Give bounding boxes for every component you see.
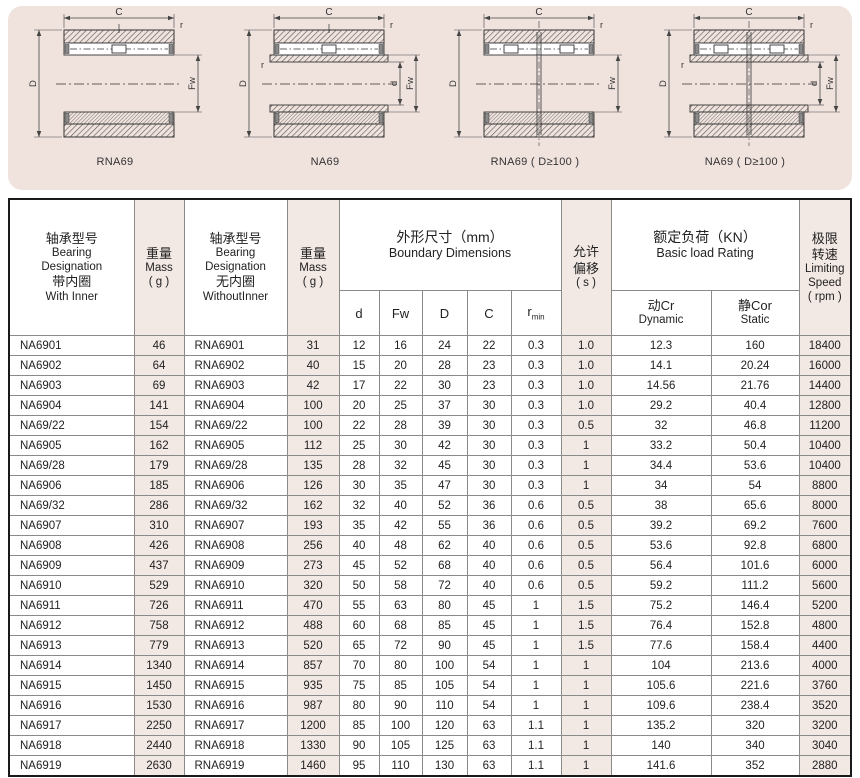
table-cell: 40.4	[711, 396, 799, 416]
table-cell: 1.1	[511, 756, 561, 777]
table-cell: 141.6	[611, 756, 711, 777]
table-cell: 32	[339, 496, 379, 516]
table-cell: 185	[134, 476, 184, 496]
dim-label-c: C	[115, 8, 122, 18]
dim-label-c: C	[325, 8, 332, 18]
table-cell: 75	[339, 676, 379, 696]
table-row: NA69/22154RNA69/22100222839300.30.53246.…	[9, 416, 851, 436]
table-cell: 38	[611, 496, 711, 516]
table-cell: 80	[422, 596, 467, 616]
table-cell: 4800	[799, 616, 851, 636]
table-cell: 213.6	[711, 656, 799, 676]
table-cell: RNA6919	[184, 756, 287, 777]
table-cell: 29.2	[611, 396, 711, 416]
table-cell: 12	[339, 336, 379, 356]
table-cell: 162	[134, 436, 184, 456]
table-cell: 1	[511, 696, 561, 716]
table-cell: 130	[422, 756, 467, 777]
table-cell: 35	[339, 516, 379, 536]
table-cell: 69	[134, 376, 184, 396]
col-subheader-D: D	[422, 291, 467, 336]
table-cell: RNA69/32	[184, 496, 287, 516]
table-cell: 35	[379, 476, 422, 496]
table-row: NA6910529RNA6910320505872400.60.559.2111…	[9, 576, 851, 596]
table-row: NA6912758RNA69124886068854511.576.4152.8…	[9, 616, 851, 636]
table-cell: 5600	[799, 576, 851, 596]
table-cell: 32	[611, 416, 711, 436]
table-cell: 30	[467, 436, 511, 456]
table-cell: 20	[339, 396, 379, 416]
table-cell: 14.1	[611, 356, 711, 376]
table-cell: 50.4	[711, 436, 799, 456]
dim-label-r: r	[390, 20, 393, 30]
table-cell: 0.3	[511, 456, 561, 476]
header-line: WithoutInner	[185, 291, 287, 305]
header-line: 轴承型号	[185, 231, 287, 247]
dim-label-fw: Fw	[405, 77, 416, 90]
table-cell: 7600	[799, 516, 851, 536]
table-cell: 110	[422, 696, 467, 716]
table-cell: 105.6	[611, 676, 711, 696]
table-cell: 64	[134, 356, 184, 376]
header-line: Designation	[10, 261, 134, 275]
table-cell: 36	[467, 516, 511, 536]
bearing-diagram-svg: CrDFw	[432, 8, 638, 160]
table-cell: 1460	[287, 756, 339, 777]
header-line: 极限	[800, 231, 851, 247]
bearing-diagram: CrDFwRNA69	[12, 8, 218, 168]
table-cell: 48	[379, 536, 422, 556]
table-cell: 100	[287, 396, 339, 416]
table-cell: 18400	[799, 336, 851, 356]
table-cell: 987	[287, 696, 339, 716]
table-cell: RNA6905	[184, 436, 287, 456]
table-cell: 135.2	[611, 716, 711, 736]
table-cell: 22	[467, 336, 511, 356]
table-cell: NA69/32	[9, 496, 134, 516]
table-cell: 437	[134, 556, 184, 576]
table-cell: 1.0	[561, 356, 611, 376]
table-cell: 158.4	[711, 636, 799, 656]
col-subheader-fw: Fw	[379, 291, 422, 336]
table-cell: 12.3	[611, 336, 711, 356]
table-cell: 42	[379, 516, 422, 536]
table-cell: 30	[467, 416, 511, 436]
table-cell: 0.3	[511, 336, 561, 356]
table-cell: 0.5	[561, 556, 611, 576]
table-cell: RNA6917	[184, 716, 287, 736]
table-cell: 0.5	[561, 576, 611, 596]
table-cell: 5200	[799, 596, 851, 616]
table-cell: NA6908	[9, 536, 134, 556]
table-cell: 2250	[134, 716, 184, 736]
table-cell: 1	[511, 596, 561, 616]
table-cell: 95	[339, 756, 379, 777]
table-cell: 0.6	[511, 576, 561, 596]
table-cell: 112	[287, 436, 339, 456]
table-cell: RNA6912	[184, 616, 287, 636]
header-line: Designation	[185, 261, 287, 275]
table-cell: 0.6	[511, 516, 561, 536]
table-cell: 100	[422, 656, 467, 676]
table-row: NA690369RNA690342172230230.31.014.5621.7…	[9, 376, 851, 396]
table-cell: 1.0	[561, 376, 611, 396]
table-cell: 37	[422, 396, 467, 416]
dim-label-r: r	[180, 20, 183, 30]
table-cell: NA6916	[9, 696, 134, 716]
table-cell: 85	[379, 676, 422, 696]
table-cell: 15	[339, 356, 379, 376]
table-cell: 42	[287, 376, 339, 396]
header-line: 轴承型号	[10, 231, 134, 247]
table-cell: 54	[711, 476, 799, 496]
table-cell: 85	[339, 716, 379, 736]
bearing-diagram: CrDFwRNA69 ( D≥100 )	[432, 8, 638, 168]
table-cell: RNA6907	[184, 516, 287, 536]
dim-label-c: C	[745, 8, 752, 18]
table-cell: 47	[422, 476, 467, 496]
table-row: NA690146RNA690131121624220.31.012.316018…	[9, 336, 851, 356]
table-cell: 935	[287, 676, 339, 696]
header-line: ( g )	[135, 276, 184, 290]
col-header-mass-2: 重量 Mass ( g )	[287, 199, 339, 336]
diagram-panel: CrDFwRNA69CrrDdFwNA69CrDFwRNA69 ( D≥100 …	[8, 6, 852, 190]
table-cell: 30	[339, 476, 379, 496]
dim-label-D: D	[658, 80, 669, 87]
table-cell: 3760	[799, 676, 851, 696]
table-row: NA6907310RNA6907193354255360.60.539.269.…	[9, 516, 851, 536]
bearing-spec-table: 轴承型号 Bearing Designation 带内圈 With Inner …	[8, 198, 852, 777]
table-body: NA690146RNA690131121624220.31.012.316018…	[9, 336, 851, 777]
table-cell: 179	[134, 456, 184, 476]
table-cell: 10400	[799, 436, 851, 456]
table-cell: 54	[467, 696, 511, 716]
table-cell: 120	[422, 716, 467, 736]
table-row: NA69141340RNA691485770801005411104213.64…	[9, 656, 851, 676]
table-cell: RNA6914	[184, 656, 287, 676]
table-cell: 22	[339, 416, 379, 436]
table-cell: 63	[379, 596, 422, 616]
table-cell: 104	[611, 656, 711, 676]
table-cell: 65	[339, 636, 379, 656]
table-cell: 1450	[134, 676, 184, 696]
table-cell: 100	[379, 716, 422, 736]
table-cell: RNA6916	[184, 696, 287, 716]
table-cell: RNA6903	[184, 376, 287, 396]
table-cell: 4400	[799, 636, 851, 656]
table-cell: 63	[467, 736, 511, 756]
dim-label-r: r	[810, 20, 813, 30]
table-cell: 20	[379, 356, 422, 376]
table-cell: 14400	[799, 376, 851, 396]
table-cell: 40	[467, 536, 511, 556]
table-cell: 470	[287, 596, 339, 616]
col-subheader-static-cor: 静Cor Static	[711, 291, 799, 336]
col-header-misalignment: 允许 偏移 ( s )	[561, 199, 611, 336]
header-line: Bearing	[10, 247, 134, 261]
table-cell: 90	[339, 736, 379, 756]
header-line: Limiting	[800, 263, 851, 277]
table-cell: 63	[467, 716, 511, 736]
table-cell: 146.4	[711, 596, 799, 616]
table-cell: 72	[422, 576, 467, 596]
table-cell: 286	[134, 496, 184, 516]
table-row: NA6904141RNA6904100202537300.31.029.240.…	[9, 396, 851, 416]
table-row: NA69/28179RNA69/28135283245300.3134.453.…	[9, 456, 851, 476]
table-cell: 726	[134, 596, 184, 616]
table-cell: 0.6	[511, 496, 561, 516]
table-cell: 25	[379, 396, 422, 416]
table-cell: 54	[467, 676, 511, 696]
table-cell: 30	[422, 376, 467, 396]
table-cell: 1	[561, 736, 611, 756]
header-line: With Inner	[10, 291, 134, 305]
table-cell: RNA6904	[184, 396, 287, 416]
table-cell: 140	[611, 736, 711, 756]
dim-label-D: D	[238, 80, 249, 87]
table-cell: 45	[422, 456, 467, 476]
col-header-basic-load-rating: 额定负荷（KN） Basic load Rating	[611, 199, 799, 291]
table-cell: 62	[422, 536, 467, 556]
header-line: ( s )	[562, 277, 611, 291]
table-cell: 0.5	[561, 496, 611, 516]
table-row: NA69161530RNA691698780901105411109.6238.…	[9, 696, 851, 716]
diagram-caption: RNA69	[12, 156, 218, 168]
table-cell: 0.3	[511, 396, 561, 416]
table-cell: 58	[379, 576, 422, 596]
table-cell: 1340	[134, 656, 184, 676]
table-cell: 50	[339, 576, 379, 596]
table-cell: NA6913	[9, 636, 134, 656]
dim-label-r: r	[681, 60, 684, 70]
table-cell: 1200	[287, 716, 339, 736]
table-cell: 1.0	[561, 396, 611, 416]
table-cell: RNA6908	[184, 536, 287, 556]
table-cell: 59.2	[611, 576, 711, 596]
table-cell: 1	[511, 676, 561, 696]
table-cell: 72	[379, 636, 422, 656]
table-cell: 36	[467, 496, 511, 516]
table-cell: 340	[711, 736, 799, 756]
table-cell: 55	[339, 596, 379, 616]
table-cell: 1	[561, 456, 611, 476]
table-cell: RNA6918	[184, 736, 287, 756]
table-cell: 1.5	[561, 596, 611, 616]
table-cell: 30	[467, 396, 511, 416]
table-cell: 1330	[287, 736, 339, 756]
table-cell: 3520	[799, 696, 851, 716]
table-cell: 52	[422, 496, 467, 516]
table-cell: 56.4	[611, 556, 711, 576]
table-cell: 352	[711, 756, 799, 777]
table-cell: 101.6	[711, 556, 799, 576]
table-cell: 1	[561, 676, 611, 696]
table-cell: 23	[467, 376, 511, 396]
dim-label-c: C	[535, 8, 542, 18]
dim-label-fw: Fw	[607, 77, 618, 90]
table-cell: NA6903	[9, 376, 134, 396]
table-cell: 80	[379, 656, 422, 676]
table-cell: 28	[379, 416, 422, 436]
table-cell: 6800	[799, 536, 851, 556]
table-cell: 21.76	[711, 376, 799, 396]
table-cell: 779	[134, 636, 184, 656]
table-cell: NA6905	[9, 436, 134, 456]
table-cell: 1	[561, 436, 611, 456]
col-header-mass: 重量 Mass ( g )	[134, 199, 184, 336]
table-cell: RNA6915	[184, 676, 287, 696]
header-line: Speed	[800, 277, 851, 291]
table-cell: 32	[379, 456, 422, 476]
table-cell: 90	[422, 636, 467, 656]
table-cell: NA6902	[9, 356, 134, 376]
table-cell: RNA6913	[184, 636, 287, 656]
header-line: ( rpm )	[800, 291, 851, 305]
table-cell: 125	[422, 736, 467, 756]
table-cell: 152.8	[711, 616, 799, 636]
table-row: NA6911726RNA69114705563804511.575.2146.4…	[9, 596, 851, 616]
table-cell: NA6906	[9, 476, 134, 496]
table-row: NA6905162RNA6905112253042300.3133.250.41…	[9, 436, 851, 456]
table-cell: 12800	[799, 396, 851, 416]
table-cell: 1	[511, 636, 561, 656]
table-cell: 529	[134, 576, 184, 596]
table-cell: 11200	[799, 416, 851, 436]
table-cell: 100	[287, 416, 339, 436]
table-row: NA6913779RNA69135206572904511.577.6158.4…	[9, 636, 851, 656]
dim-label-r: r	[261, 60, 264, 70]
header-line: 偏移	[562, 261, 611, 277]
table-cell: NA6907	[9, 516, 134, 536]
table-cell: 75.2	[611, 596, 711, 616]
table-row: NA690264RNA690240152028230.31.014.120.24…	[9, 356, 851, 376]
table-cell: 30	[467, 456, 511, 476]
table-cell: NA6909	[9, 556, 134, 576]
table-cell: 45	[339, 556, 379, 576]
table-cell: 68	[422, 556, 467, 576]
table-cell: 76.4	[611, 616, 711, 636]
header-line: 重量	[135, 246, 184, 262]
table-cell: 126	[287, 476, 339, 496]
table-cell: 0.6	[511, 536, 561, 556]
table-cell: NA6915	[9, 676, 134, 696]
table-cell: 39.2	[611, 516, 711, 536]
bearing-diagram-svg: CrDFw	[12, 8, 218, 160]
table-cell: 46.8	[711, 416, 799, 436]
diagram-caption: NA69 ( D≥100 )	[642, 156, 848, 168]
table-cell: RNA69/28	[184, 456, 287, 476]
table-cell: 758	[134, 616, 184, 636]
table-cell: 42	[422, 436, 467, 456]
table-cell: NA6917	[9, 716, 134, 736]
table-cell: NA69/28	[9, 456, 134, 476]
dim-label-fw: Fw	[187, 77, 198, 90]
table-cell: 45	[467, 636, 511, 656]
table-cell: 0.5	[561, 536, 611, 556]
table-cell: NA6919	[9, 756, 134, 777]
table-row: NA6908426RNA6908256404862400.60.553.692.…	[9, 536, 851, 556]
col-header-without-inner: 轴承型号 Bearing Designation 无内圈 WithoutInne…	[184, 199, 287, 336]
diagram-caption: RNA69 ( D≥100 )	[432, 156, 638, 168]
table-cell: 16000	[799, 356, 851, 376]
table-cell: 30	[379, 436, 422, 456]
table-cell: 8000	[799, 496, 851, 516]
table-cell: NA69/22	[9, 416, 134, 436]
table-cell: 0.3	[511, 356, 561, 376]
table-cell: 68	[379, 616, 422, 636]
table-cell: 2880	[799, 756, 851, 777]
table-cell: 8800	[799, 476, 851, 496]
table-cell: 45	[467, 596, 511, 616]
table-cell: 3040	[799, 736, 851, 756]
col-header-limiting-speed: 极限 转速 Limiting Speed ( rpm )	[799, 199, 851, 336]
diagram-caption: NA69	[222, 156, 428, 168]
table-cell: 20.24	[711, 356, 799, 376]
table-row: NA6909437RNA6909273455268400.60.556.4101…	[9, 556, 851, 576]
table-row: NA69151450RNA691593575851055411105.6221.…	[9, 676, 851, 696]
table-cell: 193	[287, 516, 339, 536]
table-cell: 1.1	[511, 736, 561, 756]
table-cell: 90	[379, 696, 422, 716]
table-cell: 105	[422, 676, 467, 696]
table-cell: NA6911	[9, 596, 134, 616]
table-cell: 28	[422, 356, 467, 376]
header-line: Mass	[135, 262, 184, 276]
header-line: 带内圈	[10, 274, 134, 290]
table-cell: 53.6	[711, 456, 799, 476]
table-cell: 1530	[134, 696, 184, 716]
table-cell: 69.2	[711, 516, 799, 536]
table-cell: 85	[422, 616, 467, 636]
col-subheader-rmin: rmin	[511, 291, 561, 336]
table-cell: 0.3	[511, 416, 561, 436]
table-cell: 22	[379, 376, 422, 396]
table-cell: 10400	[799, 456, 851, 476]
table-cell: RNA6909	[184, 556, 287, 576]
table-cell: 857	[287, 656, 339, 676]
table-cell: 110	[379, 756, 422, 777]
table-row: NA69182440RNA6918133090105125631.1114034…	[9, 736, 851, 756]
table-cell: 40	[339, 536, 379, 556]
table-cell: 92.8	[711, 536, 799, 556]
table-cell: 273	[287, 556, 339, 576]
table-cell: 16	[379, 336, 422, 356]
table-cell: 1	[511, 616, 561, 636]
col-subheader-dynamic-cr: 动Cr Dynamic	[611, 291, 711, 336]
table-cell: 33.2	[611, 436, 711, 456]
table-cell: 23	[467, 356, 511, 376]
table-cell: 4000	[799, 656, 851, 676]
table-cell: 24	[422, 336, 467, 356]
table-cell: 0.3	[511, 476, 561, 496]
table-cell: RNA6911	[184, 596, 287, 616]
table-cell: NA6918	[9, 736, 134, 756]
table-cell: NA6904	[9, 396, 134, 416]
table-cell: 40	[287, 356, 339, 376]
table-cell: 320	[711, 716, 799, 736]
table-cell: 0.3	[511, 376, 561, 396]
table-cell: 60	[339, 616, 379, 636]
table-cell: 45	[467, 616, 511, 636]
header-line: 允许	[562, 244, 611, 260]
table-cell: 111.2	[711, 576, 799, 596]
table-cell: 0.3	[511, 436, 561, 456]
table-cell: 109.6	[611, 696, 711, 716]
table-cell: 0.5	[561, 416, 611, 436]
table-cell: 520	[287, 636, 339, 656]
table-cell: 1	[511, 656, 561, 676]
table-cell: 162	[287, 496, 339, 516]
